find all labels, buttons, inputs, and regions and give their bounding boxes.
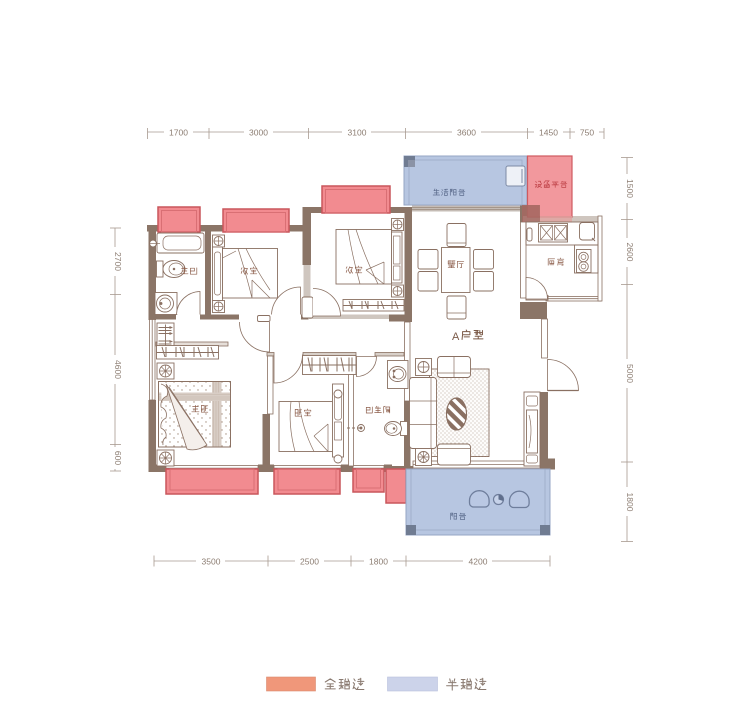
svg-text:3100: 3100	[348, 128, 367, 138]
svg-text:3000: 3000	[249, 128, 268, 138]
svg-text:5000: 5000	[625, 364, 635, 383]
svg-text:2600: 2600	[625, 243, 635, 262]
svg-text:3600: 3600	[457, 128, 476, 138]
svg-text:4600: 4600	[113, 360, 123, 379]
svg-text:1700: 1700	[169, 128, 188, 138]
svg-text:4200: 4200	[469, 557, 488, 567]
svg-text:A: A	[452, 331, 460, 343]
svg-text:2700: 2700	[113, 252, 123, 271]
svg-text:750: 750	[580, 128, 594, 138]
svg-text:600: 600	[113, 451, 123, 465]
svg-text:1500: 1500	[625, 179, 635, 198]
svg-text:1450: 1450	[539, 128, 558, 138]
svg-text:1800: 1800	[369, 557, 388, 567]
svg-text:2500: 2500	[300, 557, 319, 567]
svg-text:3500: 3500	[202, 557, 221, 567]
svg-text:1800: 1800	[625, 493, 635, 512]
